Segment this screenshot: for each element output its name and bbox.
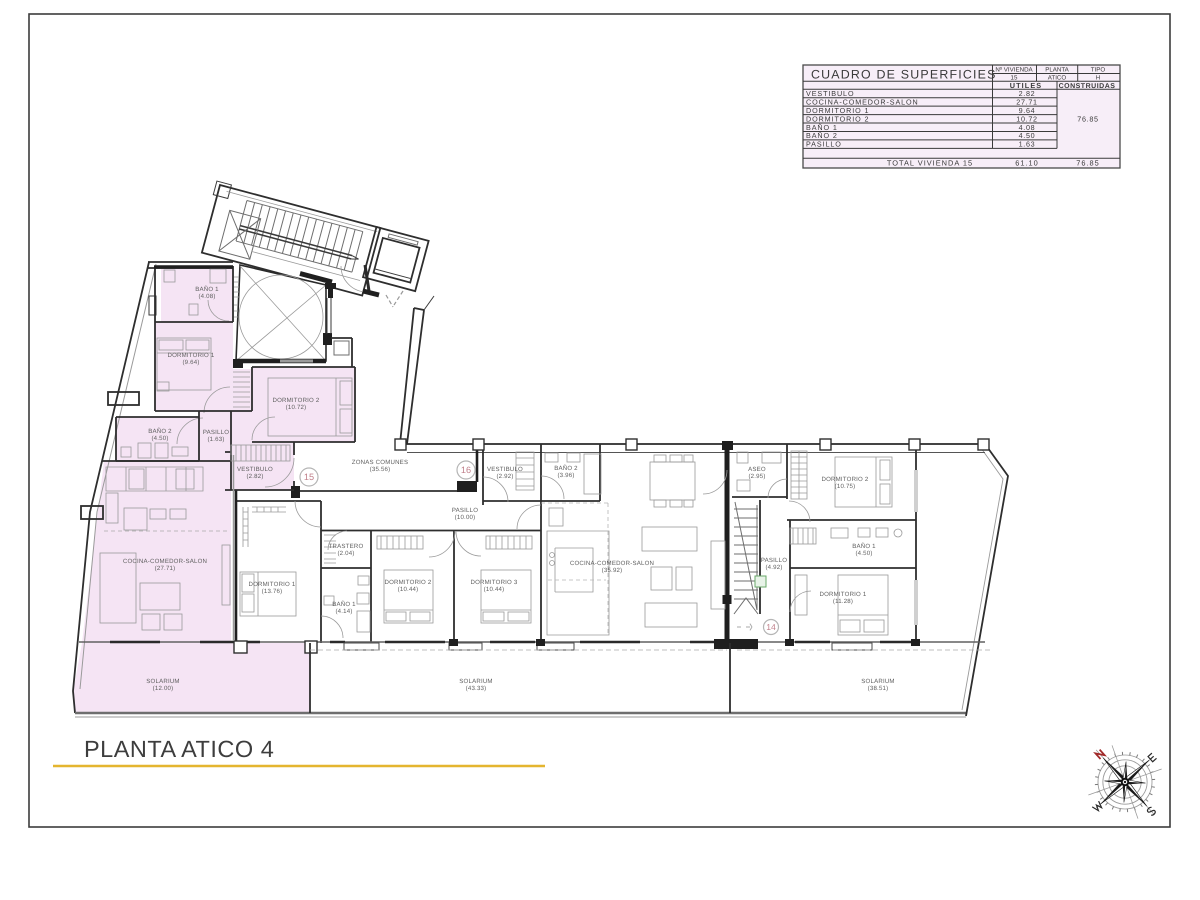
svg-text:CONSTRUIDAS: CONSTRUIDAS <box>1059 83 1116 90</box>
svg-text:(4.14): (4.14) <box>335 608 352 615</box>
svg-text:(27.71): (27.71) <box>155 565 176 572</box>
svg-text:H: H <box>1096 75 1100 82</box>
svg-text:(1.63): (1.63) <box>207 436 224 443</box>
svg-text:TRASTERO: TRASTERO <box>329 543 364 550</box>
svg-text:(2.92): (2.92) <box>496 473 513 480</box>
svg-text:SOLARIUM: SOLARIUM <box>146 678 179 685</box>
svg-text:15: 15 <box>304 472 314 482</box>
svg-text:(2.95): (2.95) <box>748 473 765 480</box>
svg-text:BAÑO 1: BAÑO 1 <box>195 285 219 293</box>
svg-text:BAÑO 2: BAÑO 2 <box>554 464 578 472</box>
svg-text:(4.92): (4.92) <box>765 564 782 571</box>
svg-text:PLANTA ATICO 4: PLANTA ATICO 4 <box>84 736 274 762</box>
svg-text:COCINA-COMEDOR-SALON: COCINA-COMEDOR-SALON <box>570 560 654 567</box>
svg-text:(2.04): (2.04) <box>337 550 354 557</box>
svg-text:14: 14 <box>766 622 776 632</box>
svg-text:ATICO: ATICO <box>1048 75 1067 82</box>
svg-text:(10.00): (10.00) <box>455 514 476 521</box>
svg-text:SOLARIUM: SOLARIUM <box>861 678 894 685</box>
svg-text:(4.50): (4.50) <box>855 550 872 557</box>
svg-text:PASILLO: PASILLO <box>761 557 787 564</box>
svg-text:BAÑO 1: BAÑO 1 <box>852 542 876 550</box>
svg-text:ZONAS COMUNES: ZONAS COMUNES <box>352 459 408 466</box>
svg-text:VESTIBULO: VESTIBULO <box>237 466 273 473</box>
svg-text:PLANTA: PLANTA <box>1045 67 1069 74</box>
svg-text:(35.56): (35.56) <box>370 466 391 473</box>
svg-text:(4.50): (4.50) <box>151 435 168 442</box>
svg-text:(2.82): (2.82) <box>246 473 263 480</box>
svg-text:DORMITORIO 1: DORMITORIO 1 <box>249 581 296 588</box>
svg-text:(38.51): (38.51) <box>868 685 889 692</box>
svg-text:(11.28): (11.28) <box>833 598 853 605</box>
svg-text:PASILLO: PASILLO <box>203 429 229 436</box>
svg-text:VESTIBULO: VESTIBULO <box>487 466 523 473</box>
svg-text:(9.64): (9.64) <box>182 359 199 366</box>
svg-text:(13.76): (13.76) <box>262 588 283 595</box>
svg-text:(10.72): (10.72) <box>286 404 307 411</box>
svg-text:1.63: 1.63 <box>1019 140 1036 149</box>
svg-text:BAÑO 1: BAÑO 1 <box>332 600 356 608</box>
svg-text:SOLARIUM: SOLARIUM <box>459 678 492 685</box>
svg-text:TIPO: TIPO <box>1091 67 1106 74</box>
svg-text:76.85: 76.85 <box>1077 114 1099 123</box>
svg-text:BAÑO 2: BAÑO 2 <box>148 427 172 435</box>
svg-text:DORMITORIO 2: DORMITORIO 2 <box>385 579 432 586</box>
svg-text:COCINA-COMEDOR-SALON: COCINA-COMEDOR-SALON <box>123 558 207 565</box>
svg-text:DORMITORIO 2: DORMITORIO 2 <box>822 476 869 483</box>
svg-text:(4.08): (4.08) <box>198 293 215 300</box>
svg-text:(10.44): (10.44) <box>484 586 505 593</box>
svg-text:DORMITORIO 1: DORMITORIO 1 <box>820 591 867 598</box>
svg-text:DORMITORIO 2: DORMITORIO 2 <box>273 397 320 404</box>
svg-text:(43.33): (43.33) <box>466 685 487 692</box>
svg-text:(10.75): (10.75) <box>835 483 856 490</box>
svg-text:76.85: 76.85 <box>1076 159 1100 168</box>
svg-text:PASILLO: PASILLO <box>806 140 842 149</box>
svg-text:Nº VIVIENDA: Nº VIVIENDA <box>995 67 1033 74</box>
svg-text:DORMITORIO 3: DORMITORIO 3 <box>471 579 518 586</box>
svg-text:(35.92): (35.92) <box>602 567 623 574</box>
svg-text:PASILLO: PASILLO <box>452 507 478 514</box>
svg-text:(12.00): (12.00) <box>153 685 174 692</box>
svg-text:ASEO: ASEO <box>748 466 766 473</box>
svg-text:DORMITORIO 1: DORMITORIO 1 <box>168 352 215 359</box>
svg-text:16: 16 <box>461 465 471 475</box>
svg-text:(10.44): (10.44) <box>398 586 419 593</box>
svg-text:CUADRO DE SUPERFICIES: CUADRO DE SUPERFICIES <box>811 68 997 82</box>
svg-text:(3.96): (3.96) <box>557 472 574 479</box>
svg-text:61.10: 61.10 <box>1015 159 1039 168</box>
svg-text:TOTAL VIVIENDA 15: TOTAL VIVIENDA 15 <box>887 159 973 168</box>
